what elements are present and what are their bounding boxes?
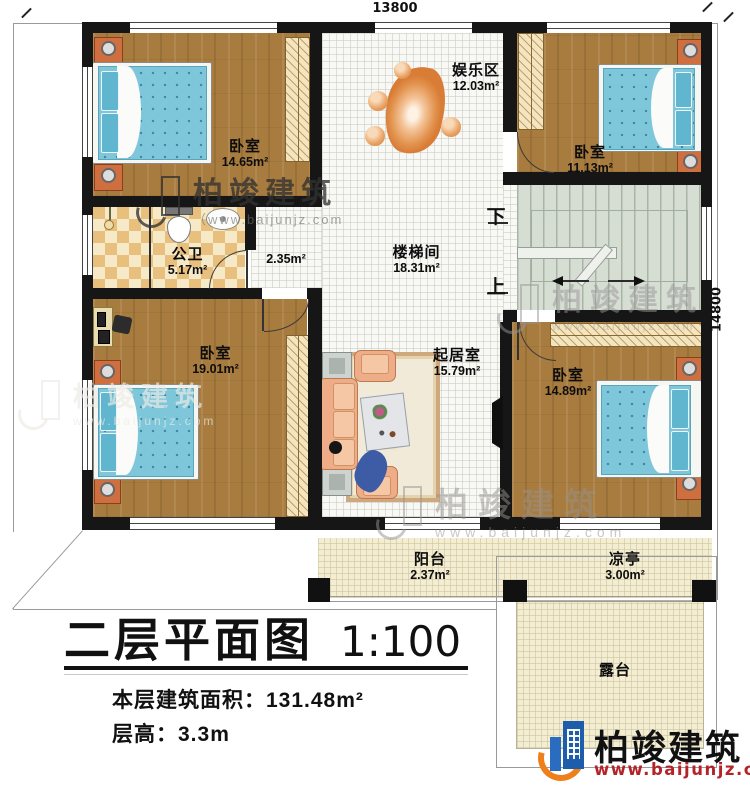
balcony-sliding-door (385, 517, 480, 530)
window (82, 67, 93, 157)
floor-drain (104, 220, 114, 230)
lamp-icon (100, 482, 115, 497)
bed-tr (598, 64, 702, 152)
sofa-cushion (333, 383, 355, 410)
lamp-icon (682, 361, 697, 376)
stairwell-label: 楼梯间 18.31m² (374, 244, 459, 276)
door-gap-bedroom-bl (262, 288, 307, 299)
shower-hose (109, 207, 111, 221)
bed-pillow (100, 433, 117, 472)
armchair-cushion (361, 354, 389, 374)
sofa-main (318, 378, 358, 470)
ottoman-ball (365, 126, 385, 146)
room-area: 5.17m² (140, 263, 235, 277)
sink-drain (220, 216, 226, 222)
room-name: 露台 (575, 662, 655, 679)
wall-bedroom-tl-bottom (82, 196, 322, 207)
flower-vase (372, 403, 394, 423)
stair-arrow-right-line (608, 280, 634, 282)
door-gap-bedroom-br (517, 310, 555, 322)
title-underline (64, 666, 468, 670)
window (82, 215, 93, 275)
lamp-icon (101, 41, 116, 56)
window (375, 22, 472, 33)
bedroom-br-label: 卧室 14.89m² (518, 367, 618, 399)
dimension-tick-tr2 (723, 12, 734, 23)
dimension-tick-tr1 (702, 2, 713, 13)
tv (492, 396, 503, 450)
person-head (329, 441, 342, 454)
scale-value: 1:100 (340, 617, 461, 666)
ottoman-ball (368, 91, 388, 111)
room-area: 2.37m² (390, 568, 470, 582)
room-name: 起居室 (412, 347, 502, 364)
dimension-top: 13800 (325, 1, 465, 16)
nightstand (94, 164, 123, 191)
ottoman-ball (441, 117, 461, 137)
pavilion-label: 凉亭 3.00m² (585, 551, 665, 583)
hallway-label: 2.35m² (246, 252, 326, 266)
terrace-label: 露台 (575, 662, 655, 679)
hallway-floor (251, 207, 322, 288)
floor-area-text: 本层建筑面积：131.48m² (112, 684, 364, 714)
bed-pillow (675, 110, 692, 146)
room-area: 15.79m² (412, 364, 502, 378)
eave-line-left (13, 23, 14, 610)
wardrobe-bl (286, 335, 309, 517)
desk-speaker (97, 312, 106, 327)
floor-plan: 卧室 14.65m² 娱乐区 12.03m² 卧室 11.13m² 公卫 5.1… (0, 0, 750, 790)
lamp-icon (682, 476, 697, 491)
brand-logo-icon (538, 721, 590, 779)
bed-pillow (101, 71, 119, 111)
title-block: 二层平面图 1:100 (64, 604, 461, 670)
window (560, 517, 660, 530)
lamp-icon (101, 168, 116, 183)
room-area: 11.13m² (540, 161, 640, 175)
wall-bedroom-bl-right (308, 288, 322, 530)
balcony-label: 阳台 2.37m² (390, 551, 470, 583)
room-name: 卧室 (168, 345, 263, 362)
side-table (322, 468, 352, 496)
nightstand (94, 478, 121, 504)
room-name: 楼梯间 (374, 244, 459, 261)
bathroom-label: 公卫 5.17m² (140, 246, 235, 278)
window (130, 22, 277, 33)
lamp-icon (683, 154, 698, 169)
stair-inner-outline (531, 210, 688, 282)
room-name: 娱乐区 (426, 62, 526, 79)
sofa-cushion (333, 411, 355, 438)
pavilion-column (692, 580, 716, 602)
bedroom-tr-label: 卧室 11.13m² (540, 144, 640, 176)
pavilion-column (503, 580, 527, 602)
wardrobe-br (550, 323, 703, 347)
bedroom-tl-label: 卧室 14.65m² (190, 138, 300, 170)
living-room-label: 起居室 15.79m² (412, 347, 502, 379)
stair-up-label: 上 (482, 272, 510, 299)
room-area: 18.31m² (374, 261, 459, 275)
bed-pillow (101, 113, 119, 153)
room-area: 3.00m² (585, 568, 665, 582)
wall-bedroom-tl-right (310, 22, 322, 207)
lamp-icon (683, 43, 698, 58)
room-area: 19.01m² (168, 362, 263, 376)
desk-chair (111, 314, 132, 334)
window (701, 207, 712, 280)
stair-arrow-left-icon (552, 276, 563, 286)
window (547, 22, 670, 33)
room-name: 卧室 (540, 144, 640, 161)
bed-pillow (675, 72, 692, 108)
eave-corner-mask (12, 532, 83, 610)
armchair (354, 350, 396, 382)
stair-arrow-left-line (563, 280, 589, 282)
brand-logo-tower-small (550, 737, 561, 771)
lamp-icon (100, 364, 115, 379)
stair-down-label: 下 (482, 202, 510, 229)
room-name: 卧室 (190, 138, 300, 155)
remote (379, 430, 385, 436)
toilet-tank (165, 207, 193, 215)
coffee-table (360, 393, 410, 452)
dimension-right: 14800 (710, 281, 725, 339)
cup (389, 431, 396, 438)
title-underline-thin (64, 674, 468, 675)
side-table (322, 352, 352, 380)
brand-website: www.baijunjz.com (594, 760, 750, 779)
room-area: 14.89m² (518, 384, 618, 398)
room-area: 2.35m² (246, 252, 326, 266)
balcony-column (308, 578, 330, 602)
bed-pillow (671, 389, 689, 429)
bed-bl (93, 384, 199, 480)
desk-monitor (98, 330, 110, 344)
watermark-logo-icon (18, 380, 64, 430)
room-area: 14.65m² (190, 155, 300, 169)
wall-bathroom-right (245, 207, 256, 250)
entertainment-label: 娱乐区 12.03m² (426, 62, 526, 94)
room-name: 卧室 (518, 367, 618, 384)
desk (93, 307, 113, 347)
floor-height-text: 层高：3.3m (112, 718, 230, 748)
brand-logo-tower (563, 721, 584, 769)
bed-pillow (671, 431, 689, 471)
room-name: 阳台 (390, 551, 470, 568)
bed-sheet (647, 385, 669, 473)
room-name: 凉亭 (585, 551, 665, 568)
room-area: 12.03m² (426, 79, 526, 93)
nightstand (677, 39, 703, 65)
stair-arrow-right-icon (634, 276, 645, 286)
nightstand (94, 37, 123, 64)
window (130, 517, 275, 530)
bed-sheet (651, 68, 673, 148)
bed-pillow (100, 392, 117, 431)
nightstand (94, 360, 121, 386)
bedroom-bl-label: 卧室 19.01m² (168, 345, 263, 377)
room-name: 公卫 (140, 246, 235, 263)
page-title: 二层平面图 (64, 604, 314, 670)
window (82, 380, 93, 470)
dimension-tick-tl (21, 8, 32, 19)
ottoman-ball (394, 62, 411, 79)
